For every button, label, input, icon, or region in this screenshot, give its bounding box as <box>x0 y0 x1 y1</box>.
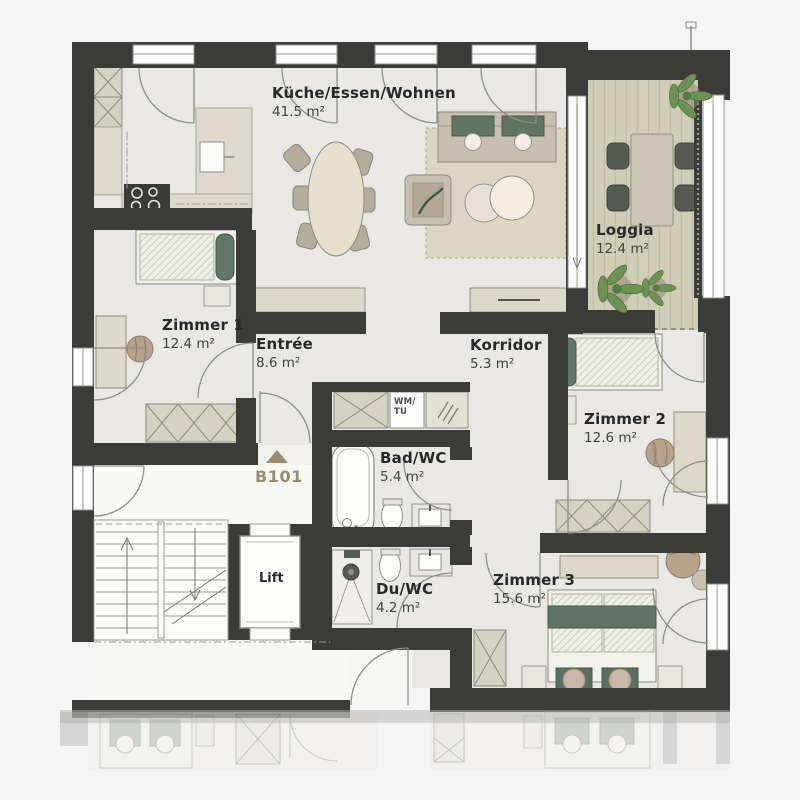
washer-dryer-label: WM/ TU <box>394 397 416 417</box>
room-label-zimmer1: Zimmer 1 12.4 m² <box>162 316 244 353</box>
desk-zimmer1 <box>96 316 126 388</box>
sideboard <box>253 288 365 312</box>
room-label-loggia: Loggia 12.4 m² <box>596 221 654 258</box>
room-label-entree: Entrée 8.6 m² <box>256 335 313 372</box>
unit-label: B101 <box>251 467 307 486</box>
bathtub <box>332 444 374 536</box>
nightstand <box>522 666 546 690</box>
loggia-chair <box>675 143 697 169</box>
coffee-table <box>490 176 534 220</box>
corridor-floor <box>88 645 350 703</box>
section-cut-band <box>60 710 730 723</box>
loggia-table <box>631 134 673 226</box>
nightstand <box>204 286 230 306</box>
loggia-chair <box>607 143 629 169</box>
room-label-bad: Bad/WC 5.4 m² <box>380 449 447 486</box>
desk-chair <box>127 336 153 362</box>
room-label-lift: Lift <box>259 571 284 587</box>
desk-zimmer2 <box>674 412 706 492</box>
loggia-chair <box>675 185 697 211</box>
unit-marker-icon <box>266 450 288 463</box>
bed-throw <box>548 606 656 628</box>
kitchen-sink <box>200 142 224 172</box>
loggia-chair <box>607 185 629 211</box>
pillow <box>216 234 234 280</box>
room-label-zimmer2: Zimmer 2 12.6 m² <box>584 410 666 447</box>
nightstand <box>658 666 682 690</box>
room-label-du: Du/WC 4.2 m² <box>376 580 433 617</box>
floorplan-canvas: Küche/Essen/Wohnen 41.5 m² Loggia 12.4 m… <box>0 0 800 800</box>
room-label-kueche: Küche/Essen/Wohnen 41.5 m² <box>272 84 456 121</box>
room-label-korridor: Korridor 5.3 m² <box>470 336 542 373</box>
shelf-cabinet <box>426 392 468 428</box>
kitchen-counter-left <box>94 127 122 195</box>
dining-table <box>308 142 364 256</box>
room-label-zimmer3: Zimmer 3 15.6 m² <box>493 571 575 608</box>
